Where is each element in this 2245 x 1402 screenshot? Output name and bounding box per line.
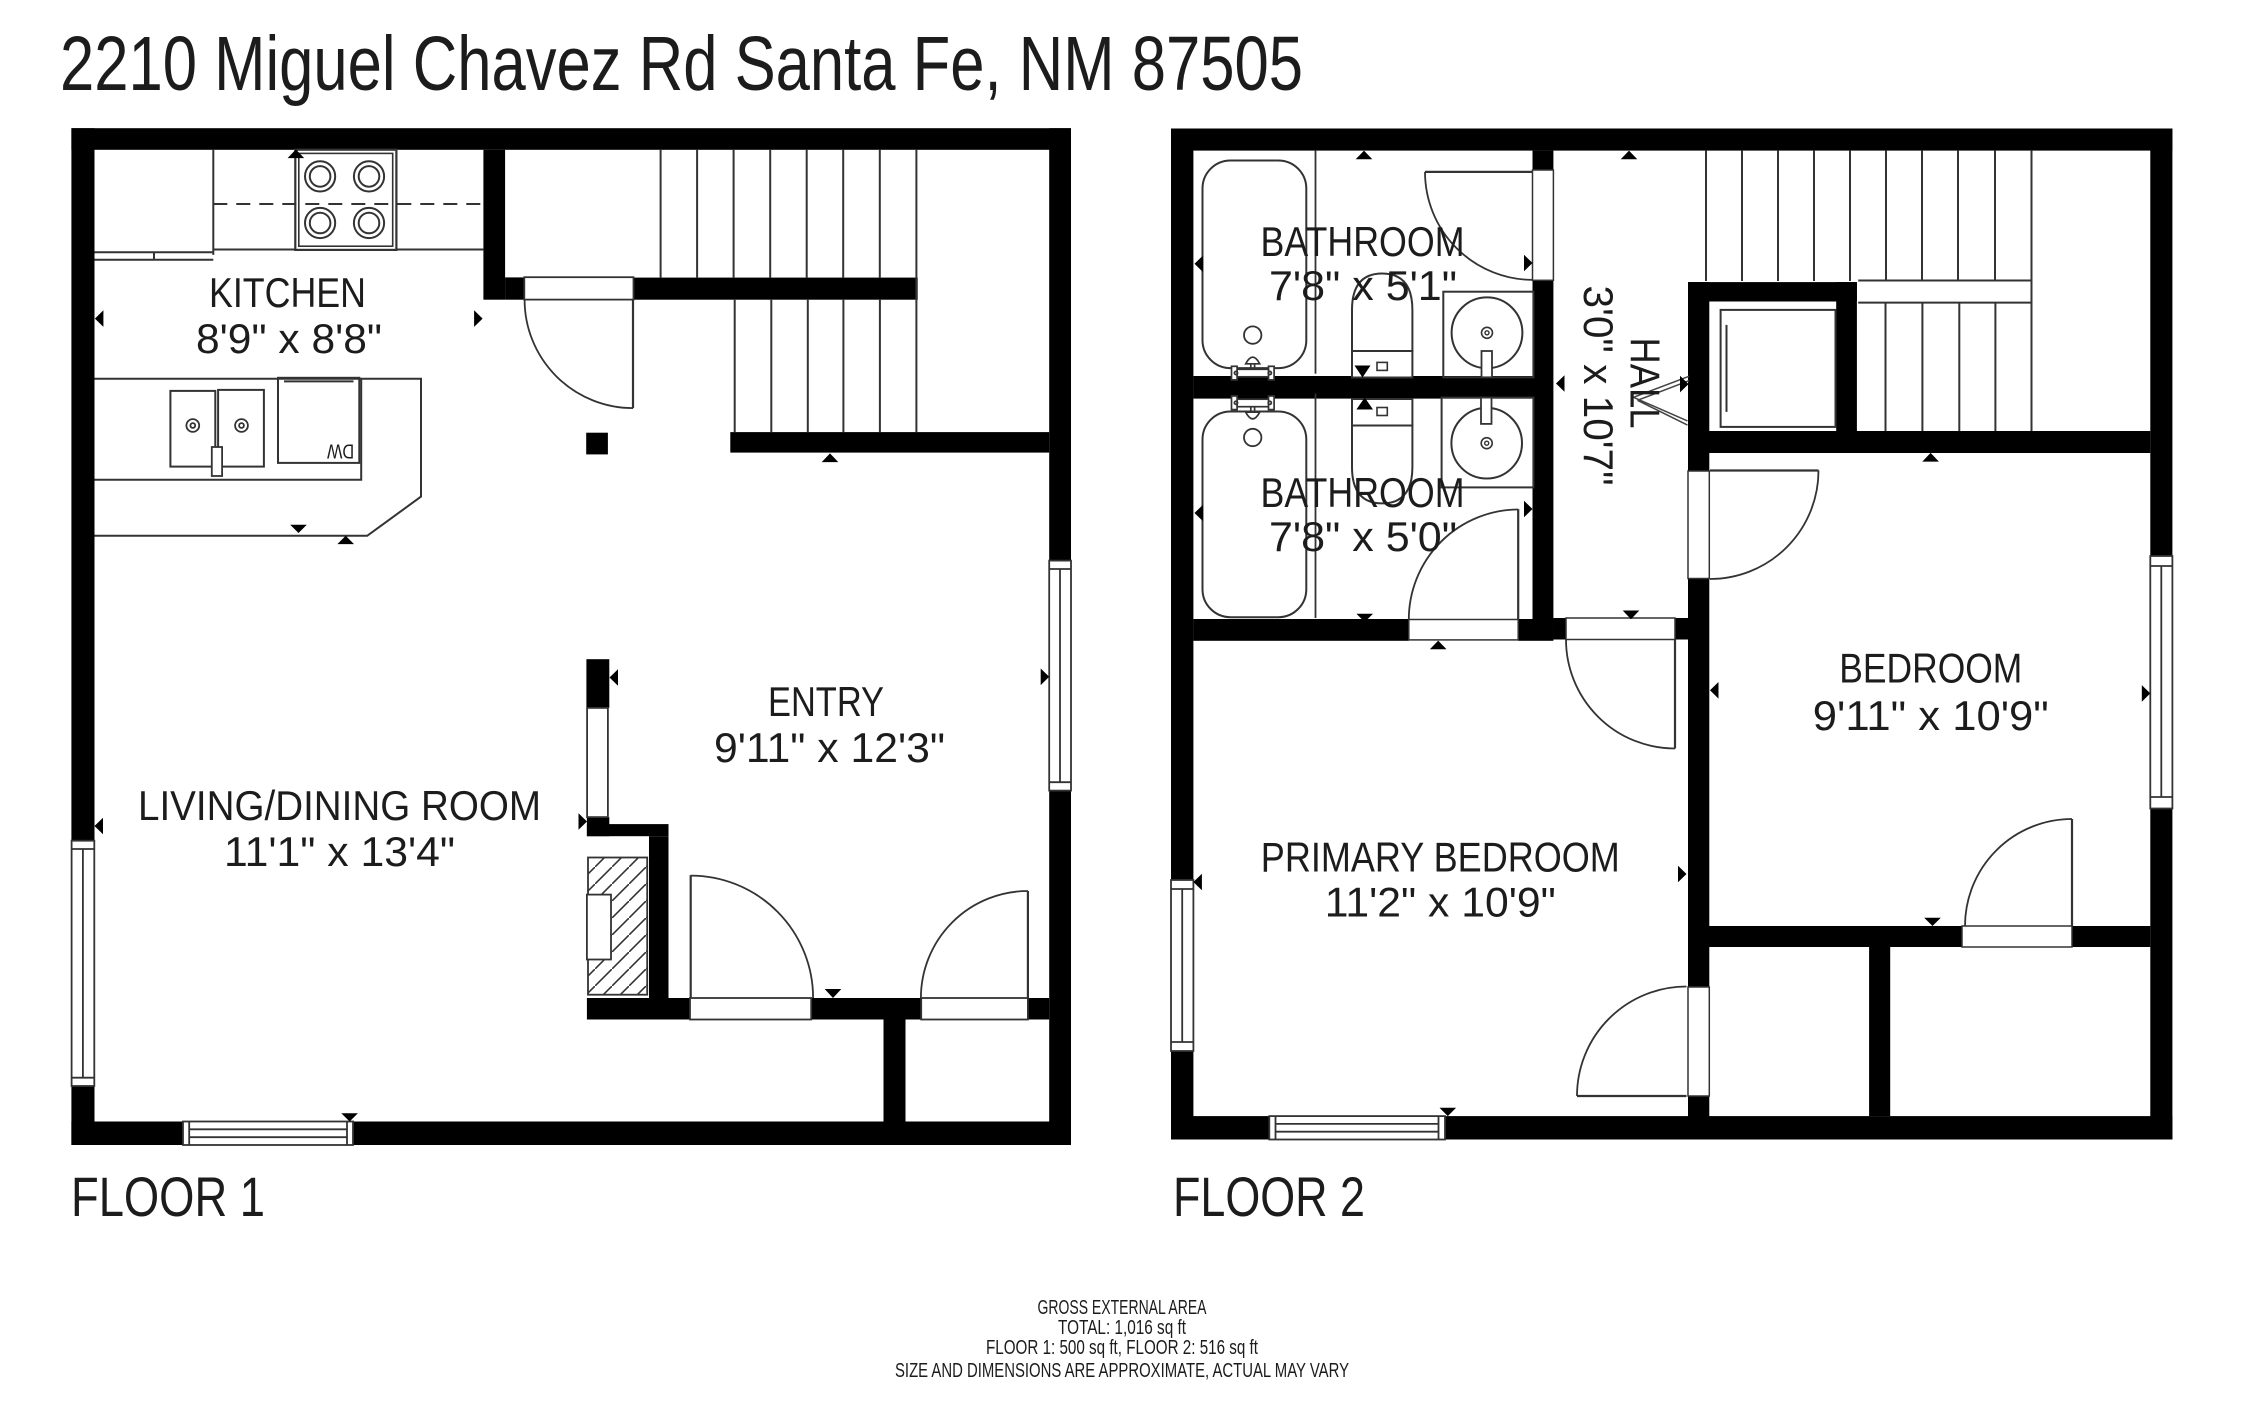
svg-text:8'9" x 8'8": 8'9" x 8'8" [196,315,382,362]
svg-text:BATHROOM: BATHROOM [1261,469,1465,516]
svg-text:ENTRY: ENTRY [768,678,884,725]
svg-text:7'8" x 5'1": 7'8" x 5'1" [1269,262,1457,309]
svg-text:11'1" x 13'4": 11'1" x 13'4" [224,828,455,875]
svg-text:FLOOR 1: 500 sq ft, FLOOR 2: 5: FLOOR 1: 500 sq ft, FLOOR 2: 516 sq ft [986,1336,1258,1359]
svg-text:SIZE AND DIMENSIONS ARE APPROX: SIZE AND DIMENSIONS ARE APPROXIMATE, ACT… [895,1359,1349,1382]
svg-text:9'11" x 10'9": 9'11" x 10'9" [1813,692,2049,739]
svg-text:HALL: HALL [1621,338,1668,429]
svg-text:BEDROOM: BEDROOM [1839,644,2022,691]
svg-text:9'11" x 12'3": 9'11" x 12'3" [714,724,945,771]
svg-text:7'8" x 5'0": 7'8" x 5'0" [1269,513,1457,560]
svg-text:KITCHEN: KITCHEN [209,269,366,316]
svg-text:LIVING/DINING ROOM: LIVING/DINING ROOM [138,782,541,829]
svg-text:FLOOR 1: FLOOR 1 [71,1165,265,1228]
svg-text:DW: DW [327,440,354,462]
svg-text:FLOOR 2: FLOOR 2 [1173,1165,1365,1228]
svg-text:BATHROOM: BATHROOM [1261,218,1465,265]
svg-text:2210 Miguel Chavez Rd Santa Fe: 2210 Miguel Chavez Rd Santa Fe, NM 87505 [60,21,1303,107]
svg-text:11'2" x 10'9": 11'2" x 10'9" [1325,879,1556,926]
svg-text:3'0" x 10'7": 3'0" x 10'7" [1575,286,1622,486]
svg-text:PRIMARY BEDROOM: PRIMARY BEDROOM [1261,834,1620,881]
